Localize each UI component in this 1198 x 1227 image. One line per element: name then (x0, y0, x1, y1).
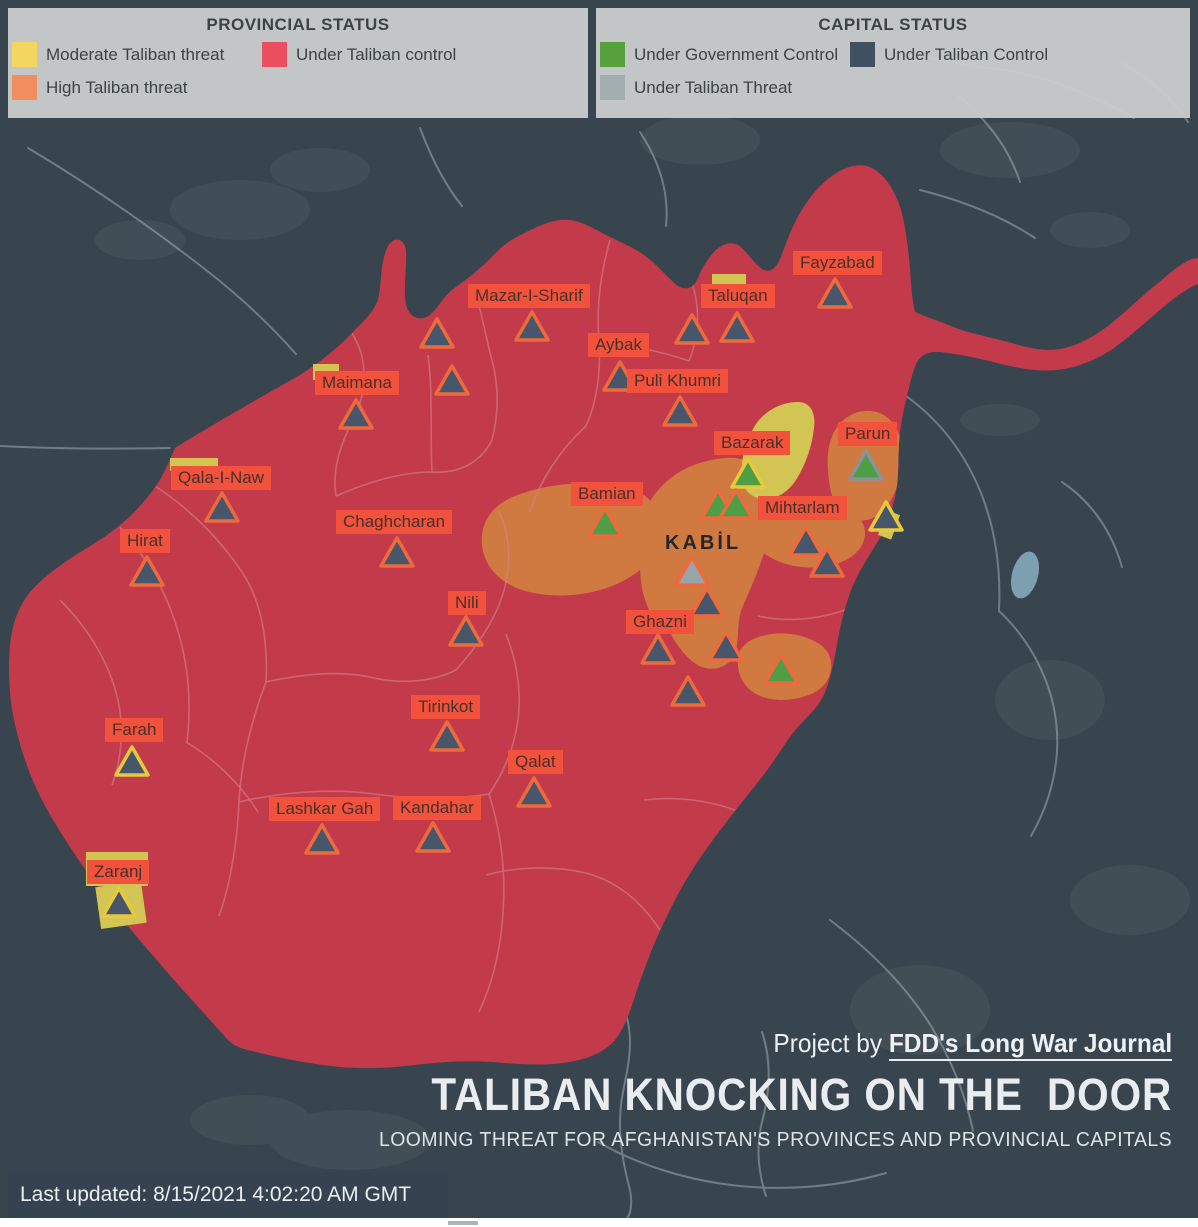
last-updated-badge: Last updated: 8/15/2021 4:02:20 AM GMT (8, 1172, 448, 1218)
provincial-legend-items: Moderate Taliban threatHigh Taliban thre… (8, 35, 588, 104)
taliban-triangle-icon (513, 309, 551, 343)
legend-label: Moderate Taliban threat (46, 45, 224, 65)
map-subtitle: LOOMING THREAT FOR AFGHANISTAN'S PROVINC… (374, 1129, 1172, 1152)
capital-marker-1-marker[interactable] (673, 312, 711, 346)
government-triangle-icon (586, 505, 624, 539)
taliban-triangle-icon (128, 554, 166, 588)
taliban-triangle-icon (418, 316, 456, 350)
city-label-hirat[interactable]: Hirat (120, 529, 170, 553)
taliban-triangle-icon (337, 397, 375, 431)
taliban-triangle-icon (808, 545, 846, 579)
government-triangle-icon (762, 652, 800, 686)
tirinkot-marker[interactable] (428, 719, 466, 753)
lashkar-gah-marker[interactable] (303, 822, 341, 856)
taliban-triangle-icon (515, 775, 553, 809)
qalat-marker[interactable] (515, 775, 553, 809)
legend-swatch (262, 42, 287, 67)
kandahar-marker[interactable] (414, 820, 452, 854)
map-canvas[interactable]: FayzabadTaluqanMazar-I-SharifAybakPuli K… (0, 0, 1198, 1218)
city-label-parun[interactable]: Parun (838, 422, 897, 446)
taliban-triangle-icon (639, 632, 677, 666)
parun-marker[interactable] (847, 448, 885, 482)
legend-item-under-government-control[interactable]: Under Government Control (600, 38, 850, 71)
maimana-marker[interactable] (337, 397, 375, 431)
capital-marker-9-marker[interactable] (707, 629, 745, 663)
city-label-bazarak[interactable]: Bazarak (714, 431, 790, 455)
capital-marker-11-marker[interactable] (762, 652, 800, 686)
dashboard: FayzabadTaluqanMazar-I-SharifAybakPuli K… (0, 0, 1198, 1227)
project-name-link[interactable]: FDD's Long War Journal (889, 1028, 1172, 1061)
mazar-i-sharif-marker[interactable] (513, 309, 551, 343)
map-title: TALIBAN KNOCKING ON THE DOOR (431, 1069, 1172, 1121)
farah-marker[interactable] (113, 744, 151, 778)
city-label-tirinkot[interactable]: Tirinkot (411, 695, 480, 719)
city-label-mazar-i-sharif[interactable]: Mazar-I-Sharif (468, 284, 590, 308)
taliban-triangle-icon (661, 394, 699, 428)
capital-marker-5-marker[interactable] (717, 487, 755, 521)
capital-marker-10-marker[interactable] (669, 674, 707, 708)
taliban-triangle-icon (673, 312, 711, 346)
taliban-triangle-icon (718, 310, 756, 344)
city-label-ghazni[interactable]: Ghazni (626, 610, 694, 634)
scrollbar-thumb[interactable] (448, 1221, 478, 1225)
footer: Project by FDD's Long War Journal TALIBA… (349, 1028, 1172, 1152)
taliban-triangle-icon (303, 822, 341, 856)
taliban-triangle-icon (113, 744, 151, 778)
city-label-bamian[interactable]: Bamian (571, 482, 643, 506)
chaghcharan-marker[interactable] (378, 535, 416, 569)
city-label-farah[interactable]: Farah (105, 718, 163, 742)
city-label-maimana[interactable]: Maimana (315, 371, 399, 395)
taliban-triangle-icon (816, 276, 854, 310)
zaranj-marker[interactable] (100, 885, 138, 919)
city-label-chaghcharan[interactable]: Chaghcharan (336, 510, 452, 534)
taluqan-marker[interactable] (718, 310, 756, 344)
legend-swatch (600, 42, 625, 67)
taliban-triangle-icon (669, 674, 707, 708)
city-label-kandahar[interactable]: Kandahar (393, 796, 481, 820)
bazarak-marker[interactable] (729, 456, 767, 490)
qala-i-naw-marker[interactable] (203, 490, 241, 524)
taliban-triangle-icon (428, 719, 466, 753)
legend-swatch (12, 42, 37, 67)
legend-label: Under Taliban control (296, 45, 456, 65)
legend-swatch (600, 75, 625, 100)
taliban-triangle-icon (414, 820, 452, 854)
capital-marker-3-marker[interactable] (433, 363, 471, 397)
city-label-lashkar-gah[interactable]: Lashkar Gah (269, 797, 380, 821)
taliban-triangle-icon (433, 363, 471, 397)
hirat-marker[interactable] (128, 554, 166, 588)
kabil-marker[interactable] (673, 554, 711, 588)
government-triangle-icon (717, 487, 755, 521)
provincial-legend-title: PROVINCIAL STATUS (8, 15, 588, 35)
city-label-taluqan[interactable]: Taluqan (701, 284, 775, 308)
city-label-aybak[interactable]: Aybak (588, 333, 649, 357)
government-triangle-icon (729, 456, 767, 490)
legend-item-high-taliban-threat[interactable]: High Taliban threat (12, 71, 262, 104)
project-credit[interactable]: Project by FDD's Long War Journal (398, 1028, 1172, 1059)
fayzabad-marker[interactable] (816, 276, 854, 310)
capital-marker-6-marker[interactable] (808, 545, 846, 579)
bamian-marker[interactable] (586, 505, 624, 539)
legend-item-under-taliban-threat[interactable]: Under Taliban Threat (600, 71, 850, 104)
capital-marker-2-marker[interactable] (418, 316, 456, 350)
legend-label: Under Government Control (634, 45, 838, 65)
capital-legend-title: CAPITAL STATUS (596, 15, 1190, 35)
capital-legend-items: Under Government ControlUnder Taliban Th… (596, 35, 1190, 104)
taliban-triangle-icon (378, 535, 416, 569)
legend-item-moderate-taliban-threat[interactable]: Moderate Taliban threat (12, 38, 262, 71)
city-label-fayzabad[interactable]: Fayzabad (793, 251, 882, 275)
city-label-kabi-l[interactable]: KABİL (665, 533, 741, 553)
city-label-qala-i-naw[interactable]: Qala-I-Naw (171, 466, 271, 490)
legend-item-under-taliban-control[interactable]: Under Taliban control (262, 38, 584, 71)
legend-swatch (850, 42, 875, 67)
city-label-zaranj[interactable]: Zaranj (87, 860, 149, 884)
taliban-triangle-icon (100, 885, 138, 919)
city-label-qalat[interactable]: Qalat (508, 750, 563, 774)
city-label-mihtarlam[interactable]: Mihtarlam (758, 496, 847, 520)
puli-khumri-marker[interactable] (661, 394, 699, 428)
city-label-nili[interactable]: Nili (448, 591, 486, 615)
project-prefix: Project by (773, 1028, 888, 1058)
taliban-triangle-icon (867, 499, 905, 533)
capital-status-legend: CAPITAL STATUS Under Government ControlU… (596, 8, 1190, 118)
legend-item-under-taliban-control[interactable]: Under Taliban Control (850, 38, 1186, 71)
capital-marker-7-marker[interactable] (867, 499, 905, 533)
legend-swatch (12, 75, 37, 100)
taliban-triangle-icon (707, 629, 745, 663)
government-triangle-icon (847, 448, 885, 482)
taliban-triangle-icon (203, 490, 241, 524)
ghazni-marker[interactable] (639, 632, 677, 666)
nili-marker[interactable] (447, 614, 485, 648)
provincial-status-legend: PROVINCIAL STATUS Moderate Taliban threa… (8, 8, 588, 118)
legend-label: Under Taliban Control (884, 45, 1048, 65)
legend-label: High Taliban threat (46, 78, 187, 98)
threat-triangle-icon (673, 554, 711, 588)
legend-label: Under Taliban Threat (634, 78, 792, 98)
taliban-triangle-icon (447, 614, 485, 648)
city-label-puli-khumri[interactable]: Puli Khumri (627, 369, 728, 393)
